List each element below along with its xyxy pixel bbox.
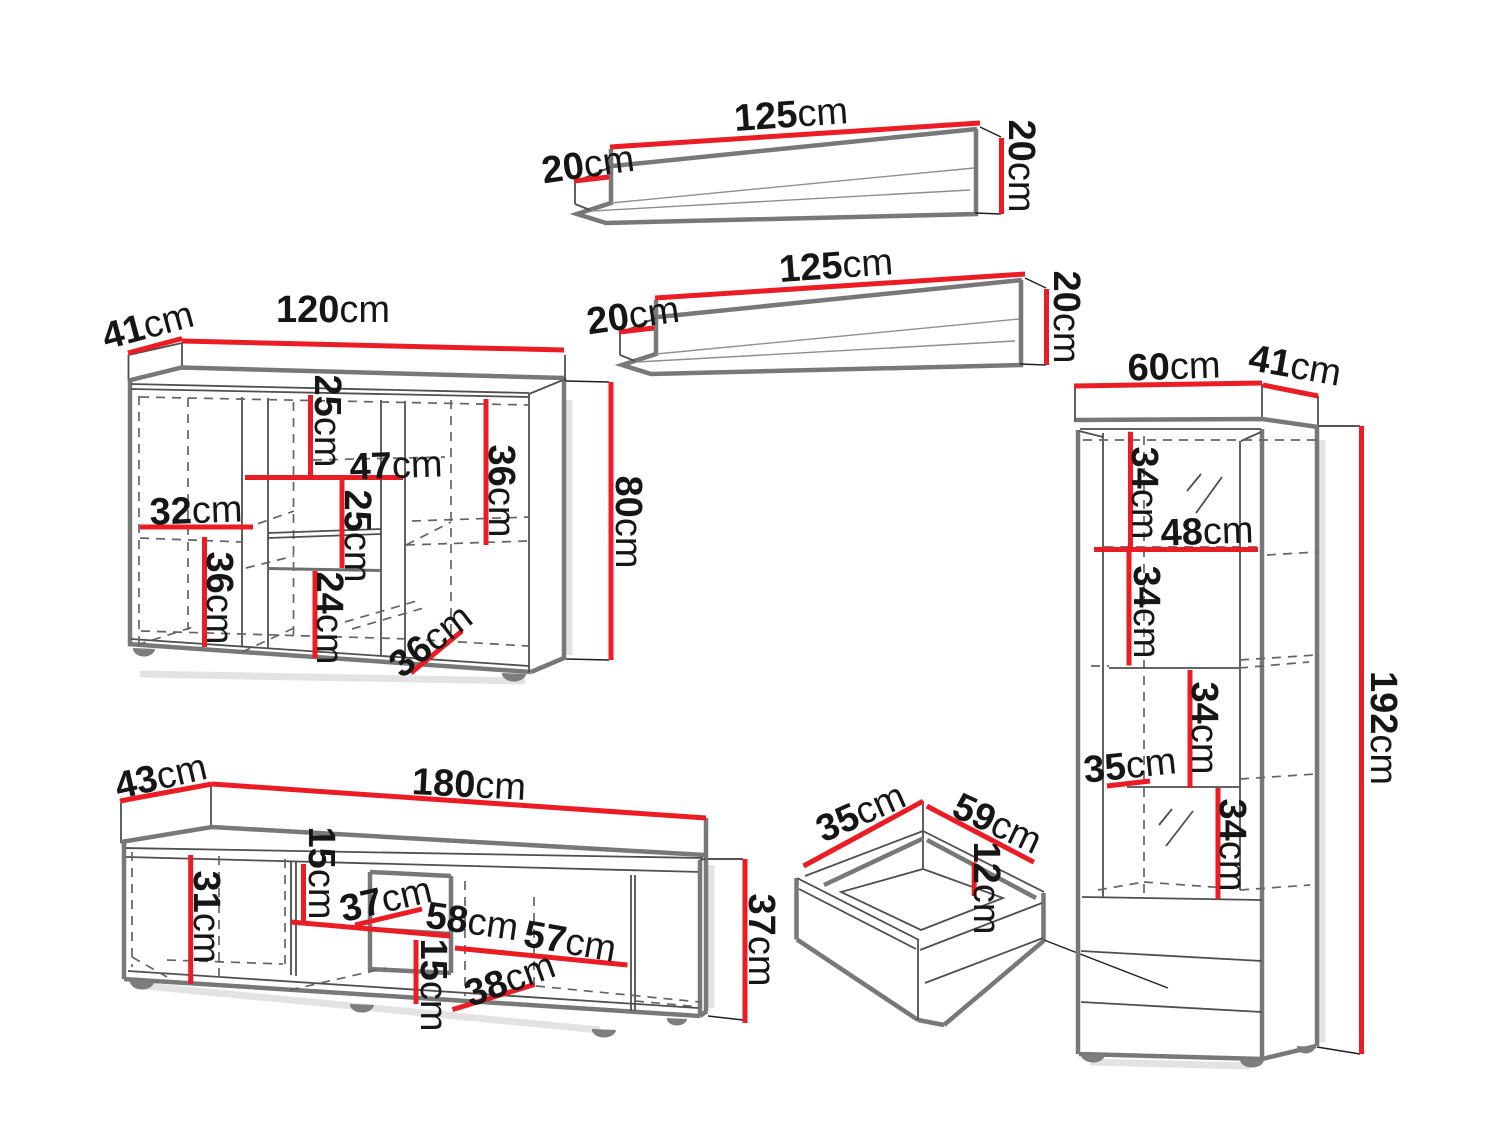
svg-text:34cm: 34cm	[1125, 566, 1167, 659]
svg-text:48cm: 48cm	[1160, 509, 1254, 554]
svg-text:15cm: 15cm	[300, 827, 342, 920]
svg-text:34cm: 34cm	[1211, 799, 1253, 892]
svg-text:32cm: 32cm	[149, 488, 243, 533]
svg-text:24cm: 24cm	[308, 572, 350, 665]
svg-text:25cm: 25cm	[336, 490, 378, 583]
svg-text:12cm: 12cm	[965, 842, 1007, 935]
svg-text:31cm: 31cm	[185, 871, 227, 964]
svg-text:192cm: 192cm	[1362, 671, 1404, 785]
svg-text:125cm: 125cm	[733, 90, 850, 140]
svg-text:37cm: 37cm	[740, 894, 782, 987]
svg-text:80cm: 80cm	[607, 476, 649, 569]
svg-text:25cm: 25cm	[306, 375, 348, 468]
svg-text:36cm: 36cm	[480, 445, 522, 538]
svg-text:36cm: 36cm	[198, 552, 240, 645]
svg-text:15cm: 15cm	[412, 939, 454, 1032]
svg-text:20cm: 20cm	[1000, 120, 1042, 213]
svg-text:60cm: 60cm	[1127, 344, 1221, 389]
svg-text:34cm: 34cm	[1123, 447, 1165, 540]
svg-text:125cm: 125cm	[778, 241, 895, 291]
svg-text:180cm: 180cm	[411, 761, 527, 809]
svg-text:47cm: 47cm	[349, 443, 443, 488]
svg-text:20cm: 20cm	[1045, 271, 1087, 364]
svg-text:120cm: 120cm	[276, 289, 390, 331]
svg-text:34cm: 34cm	[1183, 682, 1225, 775]
